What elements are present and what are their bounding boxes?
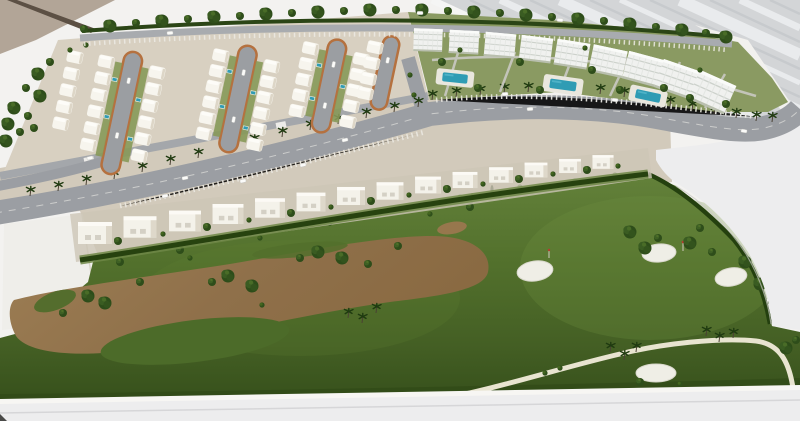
model-photo [0, 0, 800, 421]
scene-svg [0, 0, 800, 421]
